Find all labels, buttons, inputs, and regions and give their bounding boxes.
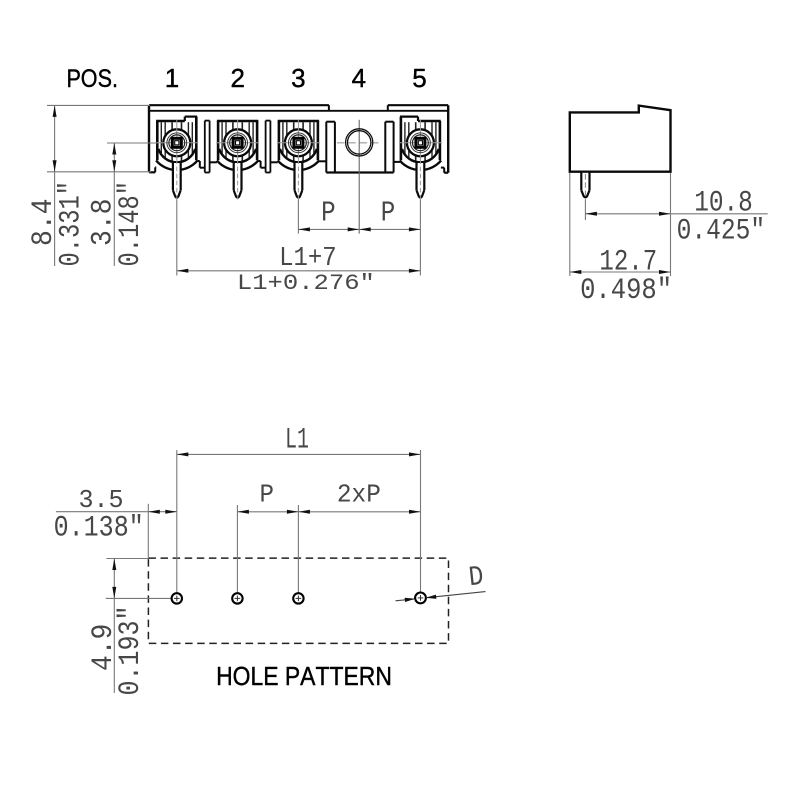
svg-text:0.498": 0.498" bbox=[580, 274, 672, 308]
svg-text:0.425": 0.425" bbox=[677, 214, 766, 248]
svg-text:L1+0.276": L1+0.276" bbox=[237, 270, 375, 296]
svg-text:POS.: POS. bbox=[66, 65, 118, 93]
svg-text:P: P bbox=[260, 480, 275, 510]
svg-text:0.138": 0.138" bbox=[54, 511, 144, 545]
svg-text:2xP: 2xP bbox=[337, 480, 381, 510]
svg-text:0.148": 0.148" bbox=[114, 181, 148, 267]
svg-text:4: 4 bbox=[352, 63, 366, 93]
svg-text:P: P bbox=[321, 197, 336, 230]
svg-text:3: 3 bbox=[291, 63, 305, 93]
svg-text:L1: L1 bbox=[285, 424, 309, 458]
svg-text:2: 2 bbox=[230, 63, 244, 93]
svg-text:1: 1 bbox=[165, 63, 179, 93]
svg-text:P: P bbox=[381, 197, 396, 230]
svg-text:0.193": 0.193" bbox=[114, 606, 148, 696]
svg-text:5: 5 bbox=[412, 63, 426, 93]
svg-text:HOLE PATTERN: HOLE PATTERN bbox=[216, 661, 392, 691]
svg-text:0.331": 0.331" bbox=[54, 181, 88, 267]
